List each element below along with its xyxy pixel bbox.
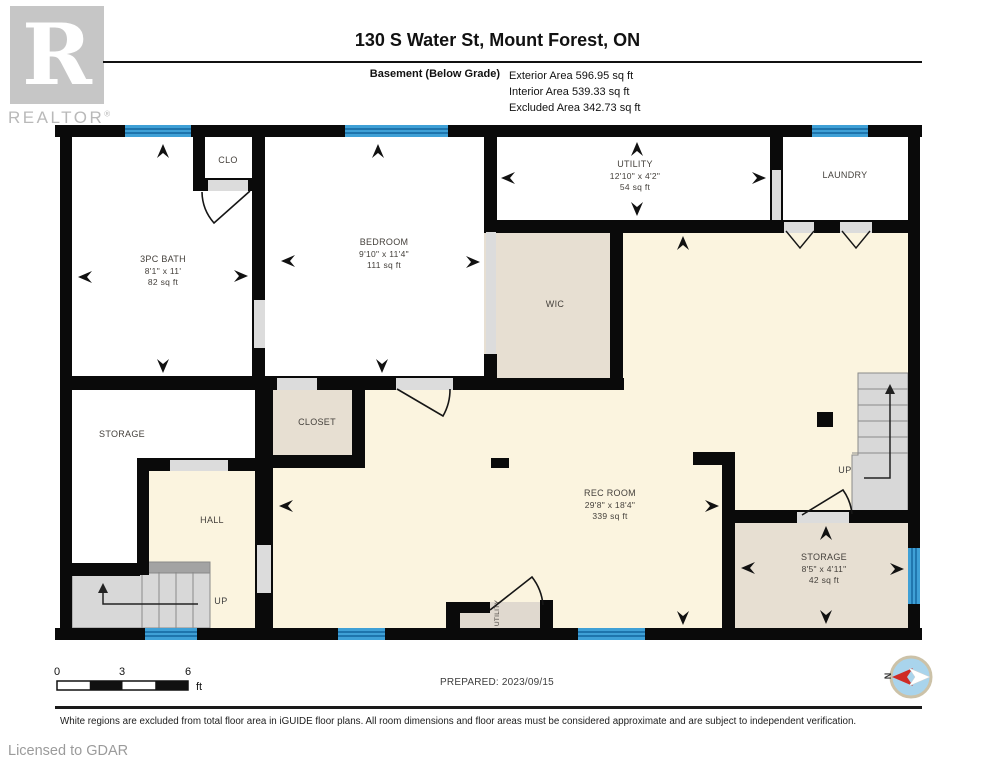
staircase-right-symbol: [852, 373, 908, 512]
room-label-hall: HALL: [200, 515, 224, 527]
room-label-closet: CLOSET: [298, 417, 336, 429]
room-label-bedroom: BEDROOM9'10" x 11'4"111 sq ft: [359, 237, 409, 271]
room-label-wic: WIC: [546, 299, 564, 311]
north-label: N: [883, 673, 893, 680]
floor-plan-page: R REALTOR® 130 S Water St, Mount Forest,…: [0, 0, 995, 768]
licensed-to: Licensed to GDAR: [8, 743, 128, 759]
room-label-storage: STORAGE: [99, 429, 145, 441]
up-label-right-stairs: UP: [838, 465, 852, 475]
room-label-laundry: LAUNDRY: [823, 170, 868, 182]
scale-tick-3: 3: [119, 666, 125, 678]
room-label-utility: UTILITY12'10" x 4'2"54 sq ft: [610, 159, 661, 193]
room-label-utility-closet: UTILITY: [494, 600, 502, 626]
room-label-clo: CLO: [218, 155, 237, 167]
scale-unit: ft: [196, 681, 202, 693]
room-label-storage-2: STORAGE8'5" x 4'11"42 sq ft: [801, 552, 847, 586]
up-label-left-stairs: UP: [214, 596, 228, 606]
disclaimer-text: White regions are excluded from total fl…: [60, 716, 960, 727]
scale-tick-0: 0: [54, 666, 60, 678]
prepared-date: PREPARED: 2023/09/15: [440, 677, 554, 688]
scale-tick-6: 6: [185, 666, 191, 678]
room-label-bath: 3PC BATH8'1" x 11'82 sq ft: [140, 254, 186, 288]
scale-bar: [57, 681, 188, 690]
footer-divider: [55, 706, 922, 709]
floor-plan-drawing: [0, 0, 995, 768]
room-label-rec-room: REC ROOM29'8" x 18'4"339 sq ft: [584, 488, 636, 522]
north-compass-icon: [891, 657, 931, 697]
